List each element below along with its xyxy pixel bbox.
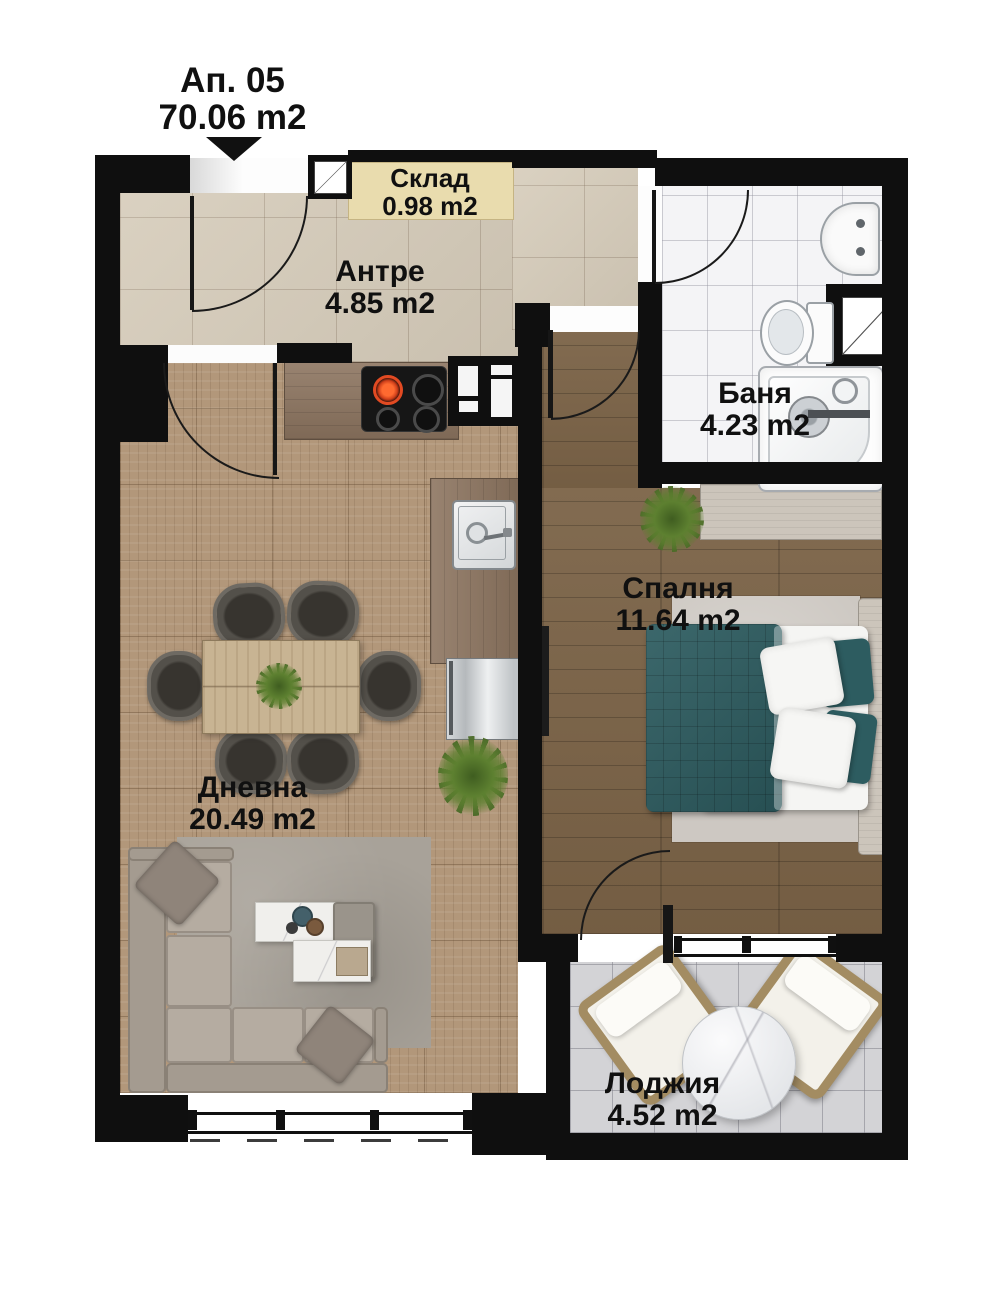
bedroom-window: [674, 938, 836, 957]
sofa-seat: [166, 935, 232, 1007]
room-label-loggia: Лоджия 4.52 m2: [550, 1068, 775, 1132]
wall: [348, 150, 512, 162]
wall: [518, 934, 578, 962]
antre-living-opening: [168, 345, 277, 363]
shaft-duct: [491, 379, 512, 417]
window-mullion: [276, 1110, 285, 1130]
room-area: 0.98 m2: [348, 193, 512, 221]
potted-plant: [438, 736, 508, 816]
window-mullion: [828, 936, 836, 953]
window-mullion: [370, 1110, 379, 1130]
floor-plan: Ап. 05 70.06 m2 Склад 0.98 m2 Антре 4.85…: [0, 0, 1000, 1300]
room-name: Антре: [265, 256, 495, 288]
wall: [118, 345, 168, 442]
wall: [546, 1133, 908, 1160]
sink-drain: [466, 522, 488, 544]
decor-bowl: [306, 918, 324, 936]
bedroom-door-opening: [550, 306, 638, 332]
wall: [95, 155, 120, 1142]
room-label-bedroom: Спалня 11.64 m2: [563, 573, 793, 637]
entry-shaft-symbol: [314, 161, 347, 194]
overhang-dashed-line: [190, 1139, 458, 1142]
room-label-bath: Баня 4.23 m2: [640, 378, 870, 442]
burner: [413, 406, 440, 433]
room-area: 4.23 m2: [640, 410, 870, 442]
room-label-storage: Склад 0.98 m2: [348, 165, 512, 220]
room-name: Дневна: [130, 772, 375, 804]
faucet-handle: [856, 247, 865, 256]
window-mullion: [742, 936, 751, 953]
room-name: Лоджия: [550, 1068, 775, 1100]
bed-pillow: [759, 636, 846, 716]
bed-pillow: [769, 706, 857, 789]
shaft-duct: [458, 366, 478, 396]
room-name: Спалня: [563, 573, 793, 605]
wardrobe: [700, 484, 882, 540]
room-label-living: Дневна 20.49 m2: [130, 772, 375, 836]
wall: [95, 1095, 188, 1142]
room-area: 11.64 m2: [563, 605, 793, 637]
wall: [512, 150, 657, 168]
dining-chair: [357, 651, 421, 721]
table-plant: [256, 663, 302, 709]
entrance-arrow-icon: [206, 137, 262, 161]
room-area: 20.49 m2: [130, 804, 375, 836]
wall: [277, 343, 352, 363]
apartment-title: Ап. 05 70.06 m2: [115, 62, 350, 136]
entrance-opening: [190, 158, 308, 193]
sofa-corner-seat: [166, 1007, 232, 1063]
wall: [836, 934, 908, 962]
faucet-handle: [856, 219, 865, 228]
wall: [882, 158, 908, 1160]
wall: [518, 345, 542, 962]
apartment-total-area: 70.06 m2: [115, 99, 350, 136]
shaft-duct: [491, 365, 512, 375]
room-area: 4.52 m2: [550, 1100, 775, 1132]
room-name: Баня: [640, 378, 870, 410]
toilet-bowl-inner: [768, 309, 804, 355]
sofa-armrest-right: [374, 1007, 388, 1063]
sofa-seat: [232, 1007, 304, 1063]
burner: [376, 407, 400, 431]
dining-chair: [286, 580, 360, 648]
sofa-back-bottom: [166, 1063, 388, 1093]
burner-active: [373, 375, 403, 405]
wall: [515, 303, 550, 347]
wall: [638, 462, 884, 484]
shaft-duct: [459, 401, 478, 412]
dishwasher-handle: [449, 661, 453, 735]
dishwasher: [446, 658, 522, 740]
window-mullion: [674, 936, 682, 953]
bedroom-plant: [640, 486, 704, 552]
decor-bowl: [286, 922, 298, 934]
burner: [412, 374, 444, 406]
room-name: Склад: [348, 165, 512, 193]
sink-faucet-base: [503, 528, 512, 537]
window-mullion: [463, 1110, 472, 1130]
wall: [120, 155, 190, 193]
room-area: 4.85 m2: [265, 288, 495, 320]
room-label-antre: Антре 4.85 m2: [265, 256, 495, 320]
wall: [655, 158, 908, 186]
window-mullion: [188, 1110, 197, 1130]
living-window: [188, 1112, 472, 1134]
decor-tray: [336, 947, 368, 976]
apartment-number: Ап. 05: [115, 62, 350, 99]
